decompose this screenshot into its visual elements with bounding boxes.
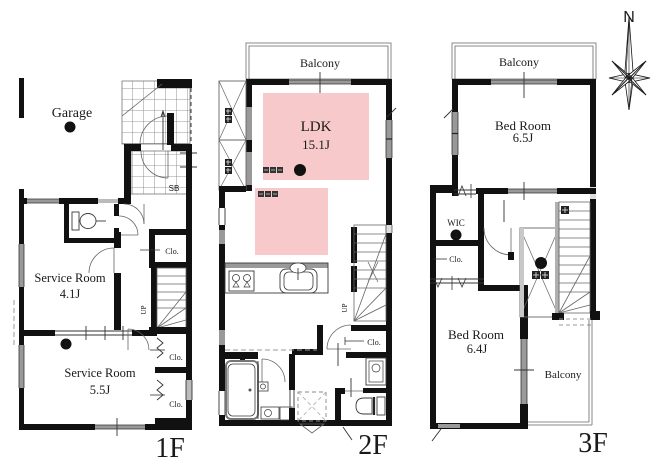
- svg-text:6.5J: 6.5J: [513, 131, 534, 145]
- svg-text:LDK: LDK: [301, 119, 332, 135]
- svg-text:2F: 2F: [358, 430, 388, 461]
- svg-text:Clo.: Clo.: [169, 353, 183, 362]
- svg-text:3: 3: [539, 259, 543, 268]
- svg-text:Bed Room: Bed Room: [448, 327, 504, 342]
- svg-text:2: 2: [298, 166, 302, 175]
- svg-text:Clo.: Clo.: [169, 400, 183, 409]
- svg-text:Clo.: Clo.: [165, 247, 179, 256]
- svg-text:6.4J: 6.4J: [467, 342, 488, 356]
- svg-text:1F: 1F: [155, 433, 185, 464]
- svg-text:3F: 3F: [578, 428, 608, 459]
- svg-text:WIC: WIC: [447, 218, 465, 228]
- svg-text:Balcony: Balcony: [300, 56, 340, 70]
- svg-text:SB: SB: [169, 184, 180, 193]
- svg-text:Service Room: Service Room: [34, 271, 105, 285]
- svg-text:15.1J: 15.1J: [302, 137, 330, 152]
- svg-text:Clo.: Clo.: [367, 338, 381, 347]
- svg-text:1: 1: [64, 340, 68, 349]
- svg-text:5.5J: 5.5J: [90, 383, 111, 397]
- svg-text:4.1J: 4.1J: [60, 287, 81, 301]
- svg-text:UP: UP: [341, 303, 349, 312]
- svg-text:Balcony: Balcony: [499, 55, 539, 69]
- svg-text:UP: UP: [140, 305, 148, 314]
- svg-text:4: 4: [454, 231, 458, 240]
- svg-text:Service Room: Service Room: [64, 366, 135, 380]
- svg-text:3: 3: [68, 123, 72, 132]
- svg-text:Clo.: Clo.: [449, 255, 463, 264]
- svg-text:Garage: Garage: [52, 106, 92, 121]
- svg-text:Balcony: Balcony: [545, 369, 582, 381]
